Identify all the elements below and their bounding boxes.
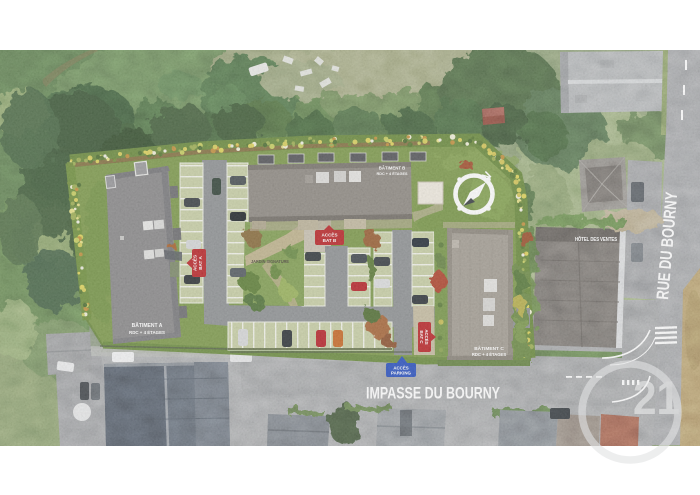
- svg-text:21: 21: [633, 371, 680, 424]
